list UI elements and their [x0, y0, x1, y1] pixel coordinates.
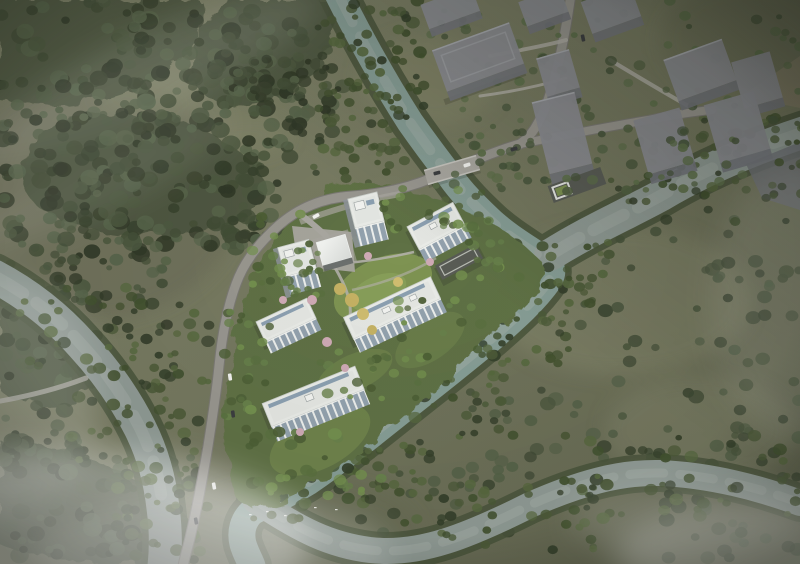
- corner-shading: [0, 0, 800, 564]
- aerial-rendering-stage: [0, 0, 800, 564]
- masterplan-rendering: [0, 0, 800, 564]
